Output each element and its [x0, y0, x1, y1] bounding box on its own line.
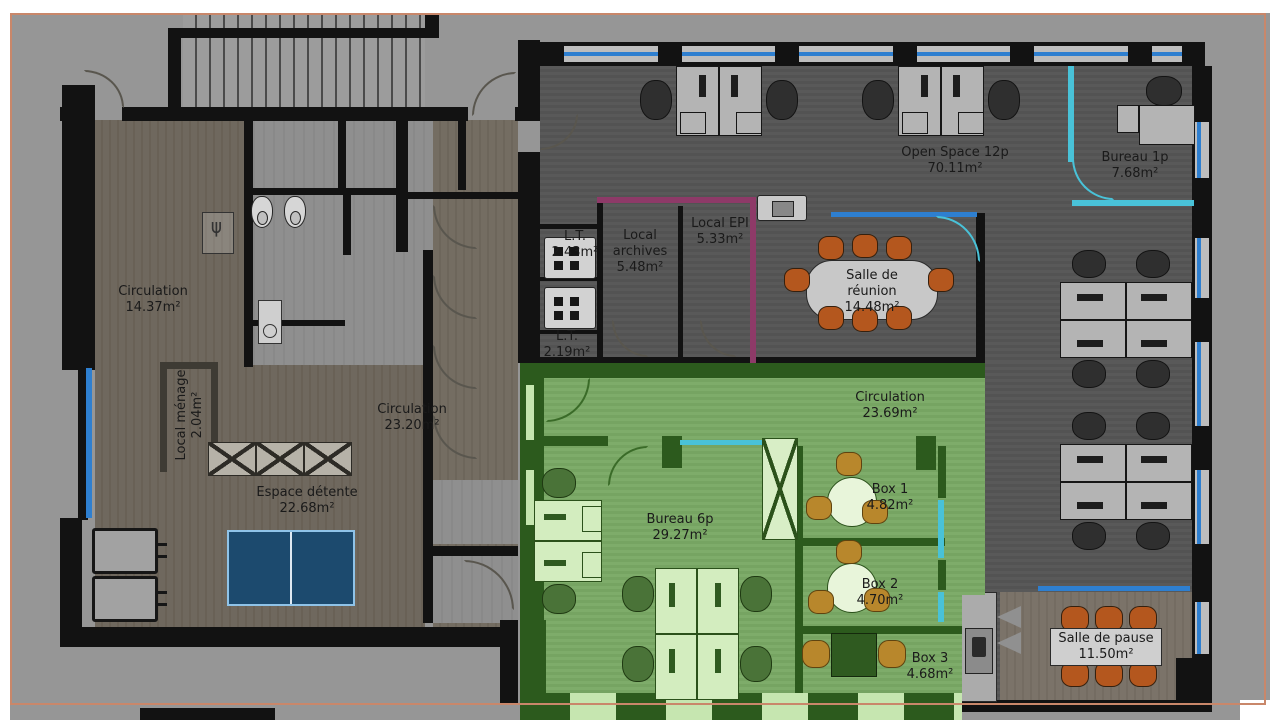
- chair: [1095, 661, 1123, 687]
- desk-cluster: [1060, 282, 1192, 358]
- window-glazing: [564, 52, 658, 56]
- chair: [1095, 606, 1123, 632]
- chair: [818, 306, 844, 330]
- wall: [62, 85, 95, 370]
- office-chair: [1136, 522, 1170, 550]
- chair: [864, 588, 890, 612]
- zone-window: [526, 470, 534, 525]
- table-football: [92, 528, 158, 574]
- wall: [518, 152, 540, 363]
- page-margin-right: [1270, 0, 1280, 720]
- chair: [852, 308, 878, 332]
- office-chair: [988, 80, 1020, 120]
- table-football: [92, 576, 158, 622]
- zone-wall: [795, 538, 945, 546]
- wall: [423, 250, 433, 623]
- office-chair: [740, 646, 772, 682]
- office-chair: [1072, 522, 1106, 550]
- locker: [208, 442, 256, 476]
- desk: [1139, 105, 1195, 145]
- wall: [60, 627, 518, 647]
- wall-magenta: [597, 197, 756, 203]
- wall: [408, 192, 518, 199]
- zone-wall: [544, 436, 608, 446]
- appliance: [544, 287, 596, 329]
- office-chair: [640, 80, 672, 120]
- desk-return: [582, 506, 602, 532]
- window-glazing: [1197, 342, 1201, 426]
- storage-cabinet: [762, 438, 798, 540]
- wall: [181, 28, 433, 38]
- office-chair: [1072, 360, 1106, 388]
- chair: [836, 540, 862, 564]
- wall: [425, 13, 439, 38]
- desk-cluster: [1060, 444, 1192, 520]
- wall-magenta: [750, 203, 756, 363]
- wall: [538, 224, 600, 229]
- chair: [784, 268, 810, 292]
- partition-glazing: [1068, 66, 1074, 162]
- wall: [500, 620, 518, 705]
- page-margin-top: [0, 0, 1280, 13]
- wall: [960, 700, 1212, 712]
- desk-return: [1117, 105, 1139, 133]
- wall: [678, 206, 683, 359]
- office-chair: [862, 80, 894, 120]
- window-glazing: [1152, 52, 1182, 56]
- chair: [836, 452, 862, 476]
- partition-glazing: [831, 212, 977, 217]
- chair: [1129, 661, 1157, 687]
- wall: [253, 188, 398, 195]
- floor-plan: Circulation 14.37m² Local ménage 2.04m² …: [0, 0, 1280, 720]
- wall: [396, 120, 408, 252]
- wall: [244, 120, 253, 367]
- desk-return: [902, 112, 928, 134]
- partition-glazing: [938, 500, 944, 558]
- chair: [806, 496, 832, 520]
- locker: [304, 442, 352, 476]
- chair: [1061, 661, 1089, 687]
- toilet: [284, 196, 306, 228]
- wall: [160, 362, 167, 472]
- page-corner: [1240, 700, 1270, 720]
- shower: [202, 212, 234, 254]
- wall: [538, 330, 600, 334]
- partition-glazing: [938, 592, 944, 622]
- window-glazing: [86, 368, 92, 518]
- appliance: [544, 237, 596, 279]
- chair: [1061, 606, 1089, 632]
- floor-salle-pause: [1000, 592, 1192, 700]
- office-chair: [1072, 250, 1106, 278]
- page-margin-left: [0, 0, 10, 720]
- desk-return: [582, 552, 602, 578]
- office-chair: [1146, 76, 1182, 106]
- zone-wall: [795, 626, 962, 634]
- door-arc: [472, 72, 516, 116]
- office-chair: [1136, 360, 1170, 388]
- office-chair: [622, 576, 654, 612]
- window-glazing: [1038, 586, 1190, 591]
- office-chair: [1136, 412, 1170, 440]
- office-chair: [542, 468, 576, 498]
- wall: [60, 518, 82, 643]
- office-chair: [766, 80, 798, 120]
- partition-glazing: [1072, 200, 1194, 206]
- floor-small-room-a: [433, 480, 518, 544]
- wall: [140, 708, 275, 720]
- zone-wall: [938, 446, 946, 498]
- printer: [757, 195, 807, 221]
- wall: [338, 120, 346, 190]
- window-glazing: [1197, 470, 1201, 544]
- toilet: [251, 196, 273, 228]
- chair: [802, 640, 830, 668]
- office-chair: [542, 584, 576, 614]
- zone-wall: [938, 560, 946, 590]
- desk-cluster: [655, 568, 739, 700]
- window-glazing: [682, 52, 775, 56]
- chair: [862, 500, 888, 524]
- zone-wall: [520, 363, 985, 378]
- chair: [928, 268, 954, 292]
- window-glazing: [1197, 238, 1201, 298]
- wall: [976, 213, 985, 363]
- wall: [518, 40, 540, 118]
- chair: [878, 640, 906, 668]
- zone-bottom-wall: [520, 693, 962, 720]
- wall: [343, 195, 351, 255]
- office-chair: [1136, 250, 1170, 278]
- wall: [122, 107, 468, 121]
- office-chair: [622, 646, 654, 682]
- kitchen-sink: [965, 628, 993, 674]
- window-glazing: [917, 52, 1010, 56]
- table: [831, 633, 877, 677]
- chair: [818, 236, 844, 260]
- wall: [160, 362, 218, 369]
- chair: [886, 236, 912, 260]
- office-chair: [740, 576, 772, 612]
- desk-return: [736, 112, 762, 134]
- wall: [458, 120, 466, 190]
- window-glazing: [799, 52, 893, 56]
- office-chair: [1072, 412, 1106, 440]
- chair: [886, 306, 912, 330]
- chair: [1129, 606, 1157, 632]
- chair: [852, 234, 878, 258]
- window-glazing: [1034, 52, 1128, 56]
- window-glazing: [1197, 602, 1201, 654]
- washbasin: [258, 300, 282, 344]
- wall: [433, 546, 518, 556]
- desk-return: [958, 112, 984, 134]
- locker: [256, 442, 304, 476]
- desk-return: [680, 112, 706, 134]
- door-arc: [84, 70, 124, 108]
- ping-pong-table: [227, 530, 355, 606]
- chair: [808, 590, 834, 614]
- window-glazing: [1197, 122, 1201, 178]
- zone-wall: [662, 436, 682, 468]
- zone-wall: [916, 436, 936, 470]
- zone-window: [526, 385, 534, 440]
